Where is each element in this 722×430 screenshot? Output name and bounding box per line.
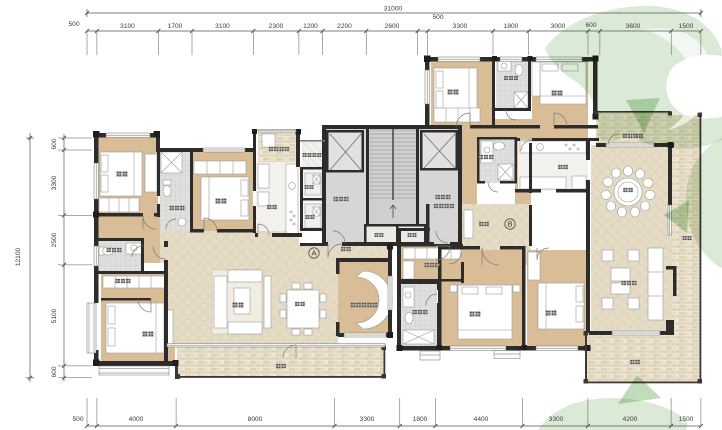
svg-text:600: 600 — [51, 366, 58, 377]
svg-text:12100: 12100 — [15, 248, 22, 267]
svg-text:500: 500 — [432, 14, 443, 21]
svg-text:3300: 3300 — [360, 416, 375, 423]
svg-text:600: 600 — [51, 138, 58, 149]
svg-text:500: 500 — [68, 21, 79, 28]
svg-text:A: A — [311, 249, 316, 258]
svg-text:4400: 4400 — [474, 416, 489, 423]
svg-text:4200: 4200 — [623, 416, 638, 423]
svg-text:1700: 1700 — [168, 23, 183, 30]
svg-text:B: B — [507, 220, 512, 229]
svg-text:3100: 3100 — [120, 23, 135, 30]
svg-text:2600: 2600 — [385, 23, 400, 30]
svg-text:1500: 1500 — [679, 416, 694, 423]
svg-text:3300: 3300 — [453, 23, 468, 30]
svg-text:1800: 1800 — [504, 23, 519, 30]
svg-text:1800: 1800 — [413, 416, 428, 423]
svg-text:600: 600 — [585, 22, 596, 29]
svg-text:8000: 8000 — [248, 416, 263, 423]
svg-text:4000: 4000 — [129, 416, 144, 423]
svg-text:3600: 3600 — [626, 23, 641, 30]
svg-text:3100: 3100 — [215, 23, 230, 30]
svg-text:1500: 1500 — [679, 23, 694, 30]
svg-text:500: 500 — [72, 416, 83, 423]
svg-text:3300: 3300 — [51, 175, 58, 190]
svg-text:3000: 3000 — [551, 23, 566, 30]
svg-text:3300: 3300 — [549, 416, 564, 423]
svg-text:2500: 2500 — [51, 232, 58, 247]
svg-text:31000: 31000 — [384, 6, 403, 13]
svg-text:2300: 2300 — [269, 23, 284, 30]
svg-text:5100: 5100 — [51, 308, 58, 323]
svg-text:1200: 1200 — [303, 23, 318, 30]
svg-text:2200: 2200 — [337, 23, 352, 30]
